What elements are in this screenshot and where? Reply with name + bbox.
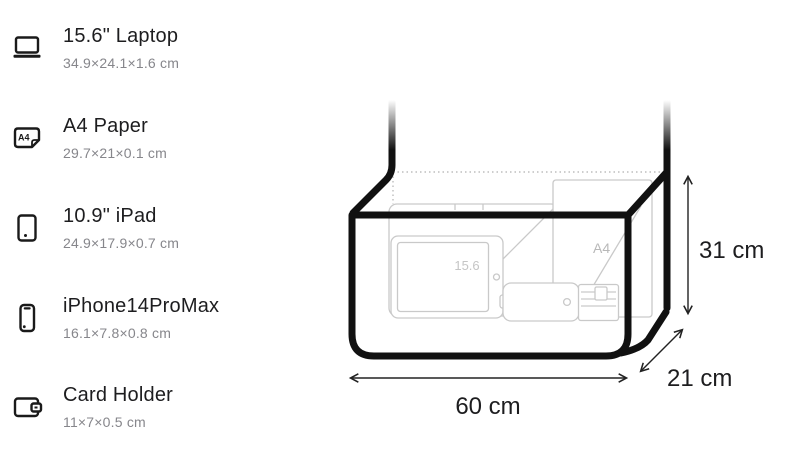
list-item-ipad: 10.9" iPad 24.9×17.9×0.7 cm [10, 204, 179, 252]
item-name: iPhone14ProMax [63, 294, 219, 318]
list-item-a4-paper: A4 A4 Paper 29.7×21×0.1 cm [10, 114, 167, 162]
tablet-icon [10, 211, 44, 245]
phone-sketch [500, 283, 579, 321]
a4-sketch-label: A4 [593, 240, 610, 256]
item-dimensions: 34.9×24.1×1.6 cm [63, 55, 179, 72]
phone-icon [10, 301, 44, 335]
item-dimensions: 29.7×21×0.1 cm [63, 145, 167, 162]
width-label: 60 cm [455, 393, 520, 420]
depth-label: 21 cm [667, 365, 732, 392]
list-item-laptop: 15.6" Laptop 34.9×24.1×1.6 cm [10, 24, 179, 72]
item-name: A4 Paper [63, 114, 167, 138]
item-name: 10.9" iPad [63, 204, 179, 228]
item-name: 15.6" Laptop [63, 24, 179, 48]
item-dimensions: 24.9×17.9×0.7 cm [63, 235, 179, 252]
strap-left [353, 102, 392, 213]
contents-sketch: A4 15.6 [389, 180, 652, 321]
list-item-card-holder: Card Holder 11×7×0.5 cm [10, 383, 173, 431]
item-dimensions: 11×7×0.5 cm [63, 414, 173, 431]
a4-icon-label: A4 [18, 133, 30, 143]
card-holder-sketch [579, 285, 619, 321]
tablet-sketch: 15.6 [391, 236, 503, 318]
laptop-icon [10, 31, 44, 65]
wallet-icon [10, 390, 44, 424]
bag-diagram: A4 15.6 31 cm 60 c [330, 0, 800, 455]
item-name: Card Holder [63, 383, 173, 407]
item-dimensions: 16.1×7.8×0.8 cm [63, 325, 219, 342]
a4-paper-icon: A4 [10, 121, 44, 155]
height-label: 31 cm [699, 237, 764, 264]
list-item-iphone: iPhone14ProMax 16.1×7.8×0.8 cm [10, 294, 219, 342]
laptop-size-label: 15.6 [454, 258, 479, 273]
